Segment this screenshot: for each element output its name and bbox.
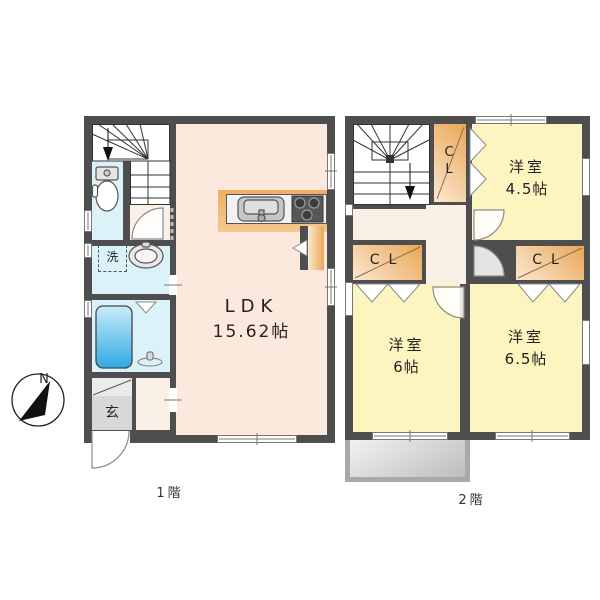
window-6p5-east (582, 320, 590, 365)
window-ldk-south (217, 435, 297, 443)
room-6p5-label: 洋室 6.5帖 (470, 326, 582, 370)
window-toilet (84, 210, 92, 232)
floor1-hall-upper (130, 205, 170, 240)
kitchen-side-wall (300, 226, 308, 270)
door-opening-washroom (169, 275, 177, 295)
closet-right-label: CL (516, 252, 584, 268)
window-4p5-north (475, 116, 547, 124)
floor2-caption: 2階 (442, 489, 502, 508)
ldk-size: 15.62帖 (176, 317, 327, 342)
floor2-stairs-area (353, 124, 430, 205)
laundry-label: 洗 (98, 245, 127, 272)
floor1-pantry (308, 226, 324, 270)
floor1-shoe-cabinet (92, 378, 132, 396)
floorplan-canvas: LDK 15.62帖 洋室 4.5帖 洋室 6帖 洋室 6.5帖 CL CL C… (0, 0, 600, 600)
window-washroom (84, 243, 92, 258)
window-6-south (372, 432, 448, 440)
window-4p5-east (582, 158, 590, 196)
floor1-caption: 1階 (140, 482, 200, 501)
window-hall-west (345, 204, 353, 216)
closet-left-label: CL (353, 252, 422, 268)
floor2-hall (353, 209, 430, 240)
floor1-ldk-room (176, 124, 327, 435)
entrance-label: 玄 (92, 402, 132, 422)
entrance-door-gap (92, 431, 130, 443)
window-ldk-right-lower (327, 268, 335, 306)
floor1-toilet-room (92, 161, 123, 240)
window-bathroom (84, 300, 92, 318)
kitchen-counter-top (226, 194, 327, 224)
window-6p5-south (495, 432, 570, 440)
ldk-label: LDK 15.62帖 (176, 296, 327, 342)
balcony (345, 440, 470, 482)
floor2-hall-branch (426, 205, 466, 284)
floor1-hall-lower (136, 378, 170, 430)
floor1-stairs-run (130, 161, 170, 205)
compass-north-label: N (36, 372, 52, 387)
closet-stairs-label: CL (441, 144, 457, 178)
door-opening-hall (169, 388, 177, 412)
window-6-west (345, 282, 353, 316)
room-6-label: 洋室 6帖 (353, 334, 460, 378)
ldk-name: LDK (176, 296, 327, 317)
floor1-bathroom (92, 300, 170, 372)
room-4p5-label: 洋室 4.5帖 (472, 156, 582, 200)
window-ldk-right-upper (327, 153, 335, 190)
floor1-stairs-area (92, 124, 170, 161)
